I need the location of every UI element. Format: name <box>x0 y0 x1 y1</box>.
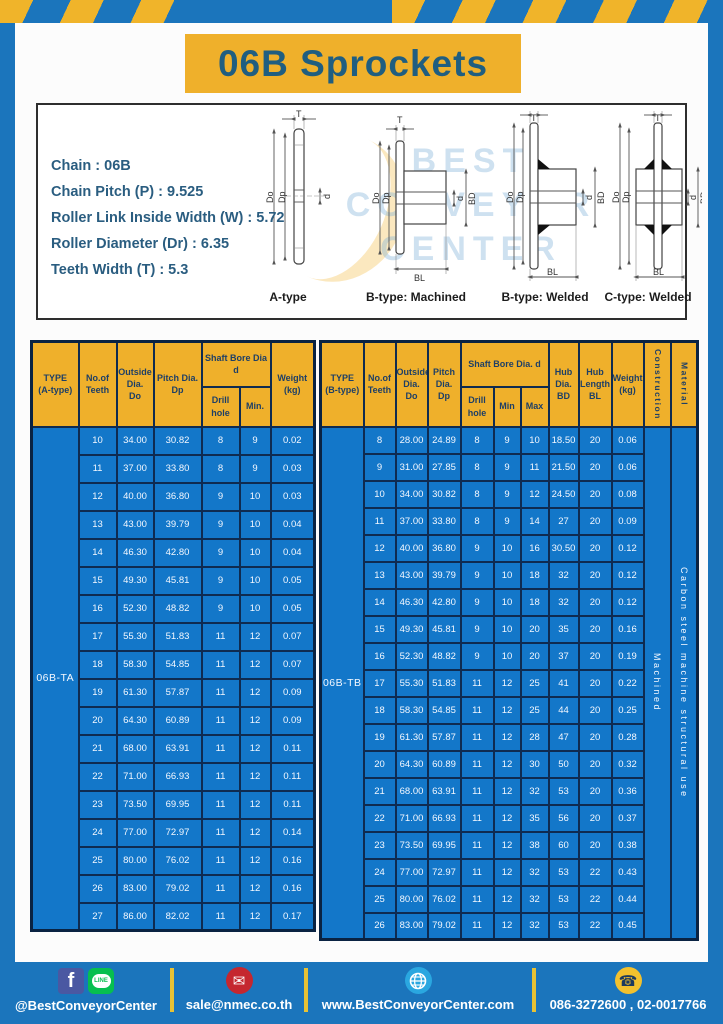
table-cell: 12 <box>494 670 521 697</box>
table-cell: 43.00 <box>396 562 428 589</box>
footer-divider <box>532 968 536 1012</box>
table-cell: 22 <box>579 859 612 886</box>
table-cell: 27 <box>79 903 117 931</box>
mail-icon[interactable]: ✉ <box>226 967 253 994</box>
table-cell: 20 <box>579 805 612 832</box>
spec-line: Teeth Width (T) : 5.3 <box>51 257 285 283</box>
table-cell: 8 <box>202 455 240 483</box>
table-cell: 42.80 <box>154 539 202 567</box>
table-cell: 11 <box>461 724 494 751</box>
table-row: 2373.5069.9511123860200.38 <box>321 832 698 859</box>
footer-email-group: ✉ sale@nmec.co.th <box>178 967 300 1012</box>
table-cell: 19 <box>79 679 117 707</box>
table-cell: 11 <box>202 903 240 931</box>
table-cell: 36.80 <box>428 535 461 562</box>
line-icon[interactable]: LINE <box>88 968 114 994</box>
table-cell: 9 <box>202 595 240 623</box>
table-cell: 39.79 <box>154 511 202 539</box>
spec-line: Chain Pitch (P) : 9.525 <box>51 179 285 205</box>
table-cell: 20 <box>579 670 612 697</box>
table-cell: 53 <box>549 778 579 805</box>
table-cell: 54.85 <box>154 651 202 679</box>
table-cell: 61.30 <box>117 679 154 707</box>
table-row: 1961.3057.8711122847200.28 <box>321 724 698 751</box>
table-cell: 0.09 <box>271 679 315 707</box>
table-cell: 12 <box>240 847 271 875</box>
social-handle[interactable]: @BestConveyorCenter <box>6 998 166 1013</box>
diagram-b-type-machined: T Do Dp d BD BL B-type: Machined <box>356 109 476 304</box>
table-cell: 12 <box>494 805 521 832</box>
table-cell: 0.22 <box>612 670 644 697</box>
table-cell: 0.03 <box>271 455 315 483</box>
table-cell: 34.00 <box>396 481 428 508</box>
table-cell: 20 <box>579 535 612 562</box>
table-cell: 58.30 <box>117 651 154 679</box>
table-cell: 76.02 <box>428 886 461 913</box>
table-row: 1755.3051.8311122541200.22 <box>321 670 698 697</box>
table-cell: 52.30 <box>396 643 428 670</box>
table-cell: 0.07 <box>271 651 315 679</box>
dim-label-t: T <box>531 113 537 123</box>
phone-icon[interactable]: ☎ <box>615 967 642 994</box>
table-row: 931.0027.85891121.50200.06 <box>321 454 698 481</box>
table-cell: 72.97 <box>154 819 202 847</box>
diagram-b-type-welded: T Do Dp d BD BL <box>486 109 604 304</box>
dim-label-bd: BD <box>467 192 476 205</box>
table-cell: 18 <box>364 697 396 724</box>
table-cell: 40.00 <box>117 483 154 511</box>
table-cell: 32 <box>521 886 549 913</box>
table-cell: 11 <box>364 508 396 535</box>
table-cell: 11 <box>202 735 240 763</box>
dim-label-bl: BL <box>547 267 558 277</box>
col-header-shaft-bore: Shaft Bore Dia d <box>202 342 271 387</box>
table-cell: 11 <box>461 832 494 859</box>
diagram-c-type-welded: T Do Dp d BD <box>594 109 702 304</box>
table-cell: 0.45 <box>612 913 644 940</box>
table-cell: 14 <box>79 539 117 567</box>
content-sheet: 06B Sprockets BEST CONVEYOR CENTER Chain… <box>15 23 708 962</box>
table-cell: 57.87 <box>428 724 461 751</box>
table-cell: 11 <box>202 875 240 903</box>
table-cell: 9 <box>494 454 521 481</box>
table-cell: 0.11 <box>271 735 315 763</box>
col-header-weight: Weight (kg) <box>612 342 644 427</box>
table-cell: 12 <box>240 875 271 903</box>
table-cell: 12 <box>494 724 521 751</box>
table-cell: 11 <box>461 805 494 832</box>
page-title: 06B Sprockets <box>218 43 488 85</box>
sprocket-table-a: TYPE (A-type) No.of Teeth Outside Dia. D… <box>30 340 316 932</box>
table-cell: 40.00 <box>396 535 428 562</box>
table-cell: 11 <box>521 454 549 481</box>
table-cell: 0.38 <box>612 832 644 859</box>
dim-label-d: d <box>322 194 332 199</box>
spec-line: Roller Diameter (Dr) : 6.35 <box>51 231 285 257</box>
table-cell: 22 <box>579 886 612 913</box>
table-cell: 20 <box>579 562 612 589</box>
table-cell: 44 <box>549 697 579 724</box>
table-cell: 8 <box>461 508 494 535</box>
table-cell: 20 <box>579 832 612 859</box>
table-row: 2477.0072.9711123253220.43 <box>321 859 698 886</box>
table-cell: 18 <box>521 589 549 616</box>
table-cell: 11 <box>202 651 240 679</box>
dim-label-do: Do <box>371 192 381 204</box>
table-cell: 20 <box>579 508 612 535</box>
table-cell: 12 <box>364 535 396 562</box>
table-cell: 32 <box>549 562 579 589</box>
col-header-construction: Construction <box>644 342 671 427</box>
table-cell: 11 <box>79 455 117 483</box>
dim-label-d: d <box>584 195 594 200</box>
table-cell: 38 <box>521 832 549 859</box>
table-cell: 20 <box>579 778 612 805</box>
table-row: 2064.3060.8911123050200.32 <box>321 751 698 778</box>
email-link[interactable]: sale@nmec.co.th <box>178 997 300 1012</box>
table-cell: 20 <box>579 751 612 778</box>
table-cell: 11 <box>202 763 240 791</box>
table-cell: 15 <box>79 567 117 595</box>
phone-numbers[interactable]: 086-3272600 , 02-0017766 <box>540 997 716 1012</box>
table-cell: 20 <box>521 643 549 670</box>
table-row: 1034.0030.82891224.50200.08 <box>321 481 698 508</box>
table-cell: 12 <box>240 791 271 819</box>
table-cell: 76.02 <box>154 847 202 875</box>
table-cell: 9 <box>461 643 494 670</box>
table-cell: 26 <box>364 913 396 940</box>
table-cell: 66.93 <box>428 805 461 832</box>
table-cell: 9 <box>240 455 271 483</box>
table-cell: 11 <box>202 791 240 819</box>
table-cell: 0.11 <box>271 791 315 819</box>
table-cell: 8 <box>364 427 396 454</box>
dim-label-bl: BL <box>414 273 425 283</box>
table-cell: 42.80 <box>428 589 461 616</box>
table-cell: 12 <box>240 903 271 931</box>
table-cell: 36.80 <box>154 483 202 511</box>
col-header-outside-dia: Outside Dia. Do <box>117 342 154 427</box>
table-cell: 83.00 <box>117 875 154 903</box>
table-cell: 9 <box>202 511 240 539</box>
table-cell: 10 <box>494 616 521 643</box>
table-cell: 22 <box>364 805 396 832</box>
table-cell: 0.16 <box>271 875 315 903</box>
table-cell: 0.17 <box>271 903 315 931</box>
table-cell: 10 <box>240 483 271 511</box>
spec-line: Roller Link Inside Width (W) : 5.72 <box>51 205 285 231</box>
table-cell: 25 <box>79 847 117 875</box>
dim-label-do: Do <box>611 191 621 203</box>
table-cell: 20 <box>579 697 612 724</box>
table-row: 1343.0039.799101832200.12 <box>321 562 698 589</box>
table-cell: 12 <box>240 735 271 763</box>
table-cell: 82.02 <box>154 903 202 931</box>
table-cell: 9 <box>240 427 271 455</box>
table-cell: 80.00 <box>396 886 428 913</box>
table-cell: 79.02 <box>428 913 461 940</box>
table-cell: 0.14 <box>271 819 315 847</box>
table-cell: 0.44 <box>612 886 644 913</box>
table-cell: 63.91 <box>428 778 461 805</box>
table-cell: 0.19 <box>612 643 644 670</box>
table-cell: 53 <box>549 859 579 886</box>
table-cell: 18 <box>79 651 117 679</box>
table-cell: 30 <box>521 751 549 778</box>
table-row: 1137.0033.80891427200.09 <box>321 508 698 535</box>
table-cell: 73.50 <box>117 791 154 819</box>
type-label-cell: 06B-TA <box>32 427 79 931</box>
table-cell: 9 <box>461 562 494 589</box>
table-row: 1446.3042.809101832200.12 <box>321 589 698 616</box>
table-cell: 22 <box>579 913 612 940</box>
table-cell: 20 <box>521 616 549 643</box>
table-row: 1858.3054.8511122544200.25 <box>321 697 698 724</box>
table-cell: 17 <box>364 670 396 697</box>
table-cell: 13 <box>79 511 117 539</box>
table-row: 2271.0066.9311123556200.37 <box>321 805 698 832</box>
table-cell: 53 <box>549 913 579 940</box>
table-cell: 33.80 <box>154 455 202 483</box>
table-cell: 58.30 <box>396 697 428 724</box>
col-header-teeth: No.of Teeth <box>79 342 117 427</box>
table-cell: 14 <box>521 508 549 535</box>
table-cell: 14 <box>364 589 396 616</box>
table-row: 1240.0036.809101630.50200.12 <box>321 535 698 562</box>
table-cell: 10 <box>494 562 521 589</box>
table-cell: 0.32 <box>612 751 644 778</box>
table-cell: 37.00 <box>396 508 428 535</box>
website-link[interactable]: www.BestConveyorCenter.com <box>312 997 524 1012</box>
table-cell: 41 <box>549 670 579 697</box>
table-cell: 0.04 <box>271 511 315 539</box>
table-cell: 54.85 <box>428 697 461 724</box>
table-cell: 16 <box>521 535 549 562</box>
footer-social-group: f LINE @BestConveyorCenter <box>6 967 166 1013</box>
table-cell: 32 <box>549 589 579 616</box>
table-cell: 28 <box>521 724 549 751</box>
table-cell: 12 <box>494 859 521 886</box>
table-cell: 31.00 <box>396 454 428 481</box>
table-cell: 21 <box>364 778 396 805</box>
table-cell: 11 <box>461 697 494 724</box>
dim-label-dp: Dp <box>621 191 631 203</box>
table-cell: 30.50 <box>549 535 579 562</box>
table-cell: 25 <box>521 697 549 724</box>
chain-specs: Chain : 06B Chain Pitch (P) : 9.525 Roll… <box>51 153 285 283</box>
table-cell: 10 <box>364 481 396 508</box>
table-cell: 12 <box>240 679 271 707</box>
table-cell: 20 <box>579 454 612 481</box>
facebook-icon[interactable]: f <box>58 968 84 994</box>
col-header-hub-length: Hub Length BL <box>579 342 612 427</box>
table-cell: 12 <box>240 651 271 679</box>
table-cell: 0.05 <box>271 595 315 623</box>
table-cell: 9 <box>461 589 494 616</box>
table-cell: 16 <box>364 643 396 670</box>
table-cell: 77.00 <box>396 859 428 886</box>
col-header-type: TYPE (A-type) <box>32 342 79 427</box>
table-cell: 66.93 <box>154 763 202 791</box>
table-cell: 51.83 <box>428 670 461 697</box>
col-header-pitch-dia: Pitch Dia. Dp <box>428 342 461 427</box>
footer-divider <box>170 968 174 1012</box>
table-cell: 47 <box>549 724 579 751</box>
table-cell: 8 <box>461 481 494 508</box>
table-cell: 11 <box>202 707 240 735</box>
table-cell: 37.00 <box>117 455 154 483</box>
table-cell: 20 <box>579 589 612 616</box>
table-cell: 12 <box>240 763 271 791</box>
table-cell: 11 <box>461 886 494 913</box>
table-row: 2580.0076.0211123253220.44 <box>321 886 698 913</box>
table-cell: 0.02 <box>271 427 315 455</box>
table-row: 2683.0079.0211123253220.45 <box>321 913 698 940</box>
table-cell: 21.50 <box>549 454 579 481</box>
table-cell: 13 <box>364 562 396 589</box>
table-cell: 48.82 <box>428 643 461 670</box>
dim-label-dp: Dp <box>515 191 525 203</box>
table-cell: 34.00 <box>117 427 154 455</box>
table-cell: 30.82 <box>154 427 202 455</box>
table-cell: 11 <box>461 778 494 805</box>
table-cell: 48.82 <box>154 595 202 623</box>
globe-icon[interactable] <box>405 967 432 994</box>
table-cell: 43.00 <box>117 511 154 539</box>
sprocket-table-b: TYPE (B-type) No.of Teeth Outside Dia. D… <box>319 340 699 941</box>
table-cell: 37 <box>549 643 579 670</box>
table-cell: 11 <box>202 679 240 707</box>
table-cell: 9 <box>461 535 494 562</box>
table-cell: 10 <box>521 427 549 454</box>
hazard-stripes-right <box>392 0 723 23</box>
table-cell: 71.00 <box>396 805 428 832</box>
diagram-caption: B-type: Machined <box>356 290 476 304</box>
table-cell: 25 <box>364 886 396 913</box>
table-cell: 9 <box>461 616 494 643</box>
table-cell: 10 <box>240 511 271 539</box>
table-cell: 0.04 <box>271 539 315 567</box>
col-header-drill-hole: Drill hole <box>202 387 240 427</box>
table-cell: 10 <box>240 539 271 567</box>
table-cell: 20 <box>579 643 612 670</box>
table-cell: 0.28 <box>612 724 644 751</box>
table-cell: 0.12 <box>612 535 644 562</box>
table-cell: 0.37 <box>612 805 644 832</box>
table-cell: 15 <box>364 616 396 643</box>
table-cell: 12 <box>494 697 521 724</box>
diagram-caption: A-type <box>238 290 338 304</box>
table-cell: 10 <box>240 567 271 595</box>
col-header-max: Max <box>521 387 549 427</box>
dim-label-bl: BL <box>653 267 664 277</box>
table-cell: 56 <box>549 805 579 832</box>
table-cell: 28.00 <box>396 427 428 454</box>
table-cell: 11 <box>202 819 240 847</box>
table-cell: 24 <box>364 859 396 886</box>
dim-label-d: d <box>688 195 698 200</box>
table-cell: 0.16 <box>271 847 315 875</box>
table-cell: 52.30 <box>117 595 154 623</box>
table-cell: 12 <box>521 481 549 508</box>
table-cell: 12 <box>240 819 271 847</box>
table-cell: 17 <box>79 623 117 651</box>
col-header-min: Min. <box>240 387 271 427</box>
table-row: 2168.0063.9111123253200.36 <box>321 778 698 805</box>
table-cell: 8 <box>461 454 494 481</box>
table-cell: 24.89 <box>428 427 461 454</box>
table-cell: 71.00 <box>117 763 154 791</box>
table-cell: 20 <box>364 751 396 778</box>
table-cell: 9 <box>202 567 240 595</box>
table-cell: 32 <box>521 913 549 940</box>
table-cell: 12 <box>494 913 521 940</box>
table-cell: 0.16 <box>612 616 644 643</box>
table-cell: 69.95 <box>428 832 461 859</box>
table-cell: 9 <box>202 539 240 567</box>
table-cell: 64.30 <box>117 707 154 735</box>
table-cell: 64.30 <box>396 751 428 778</box>
table-cell: 33.80 <box>428 508 461 535</box>
table-cell: 12 <box>494 751 521 778</box>
footer-website-group: www.BestConveyorCenter.com <box>312 967 524 1012</box>
col-header-shaft-bore: Shaft Bore Dia. d <box>461 342 549 387</box>
table-cell: 49.30 <box>396 616 428 643</box>
table-cell: 55.30 <box>396 670 428 697</box>
table-cell: 11 <box>202 847 240 875</box>
table-cell: 45.81 <box>154 567 202 595</box>
table-cell: 8 <box>202 427 240 455</box>
table-cell: 35 <box>549 616 579 643</box>
dim-label-t: T <box>296 109 302 119</box>
table-cell: 12 <box>494 778 521 805</box>
table-cell: 55.30 <box>117 623 154 651</box>
table-cell: 0.06 <box>612 427 644 454</box>
table-cell: 12 <box>79 483 117 511</box>
table-cell: 11 <box>461 751 494 778</box>
table-cell: 0.11 <box>271 763 315 791</box>
table-cell: 26 <box>79 875 117 903</box>
table-row: 1652.3048.829102037200.19 <box>321 643 698 670</box>
hazard-stripes-left <box>0 0 196 23</box>
table-cell: 8 <box>461 427 494 454</box>
table-cell: 30.82 <box>428 481 461 508</box>
table-cell: 10 <box>494 535 521 562</box>
table-cell: 46.30 <box>396 589 428 616</box>
table-cell: 12 <box>494 832 521 859</box>
dim-label-do: Do <box>505 191 515 203</box>
material-cell: Carbon steel machine structural use <box>671 427 698 940</box>
table-cell: 20 <box>79 707 117 735</box>
table-cell: 18 <box>521 562 549 589</box>
table-cell: 9 <box>364 454 396 481</box>
table-cell: 51.83 <box>154 623 202 651</box>
sprocket-drawing-b-machined: T Do Dp d BD BL <box>356 109 476 289</box>
table-cell: 12 <box>494 886 521 913</box>
table-cell: 79.02 <box>154 875 202 903</box>
col-header-weight: Weight (kg) <box>271 342 315 427</box>
table-cell: 69.95 <box>154 791 202 819</box>
table-cell: 9 <box>494 427 521 454</box>
table-cell: 77.00 <box>117 819 154 847</box>
table-cell: 10 <box>240 595 271 623</box>
table-cell: 0.07 <box>271 623 315 651</box>
table-cell: 11 <box>461 670 494 697</box>
dim-label-t: T <box>397 115 403 125</box>
table-cell: 25 <box>521 670 549 697</box>
table-cell: 21 <box>79 735 117 763</box>
table-cell: 23 <box>79 791 117 819</box>
